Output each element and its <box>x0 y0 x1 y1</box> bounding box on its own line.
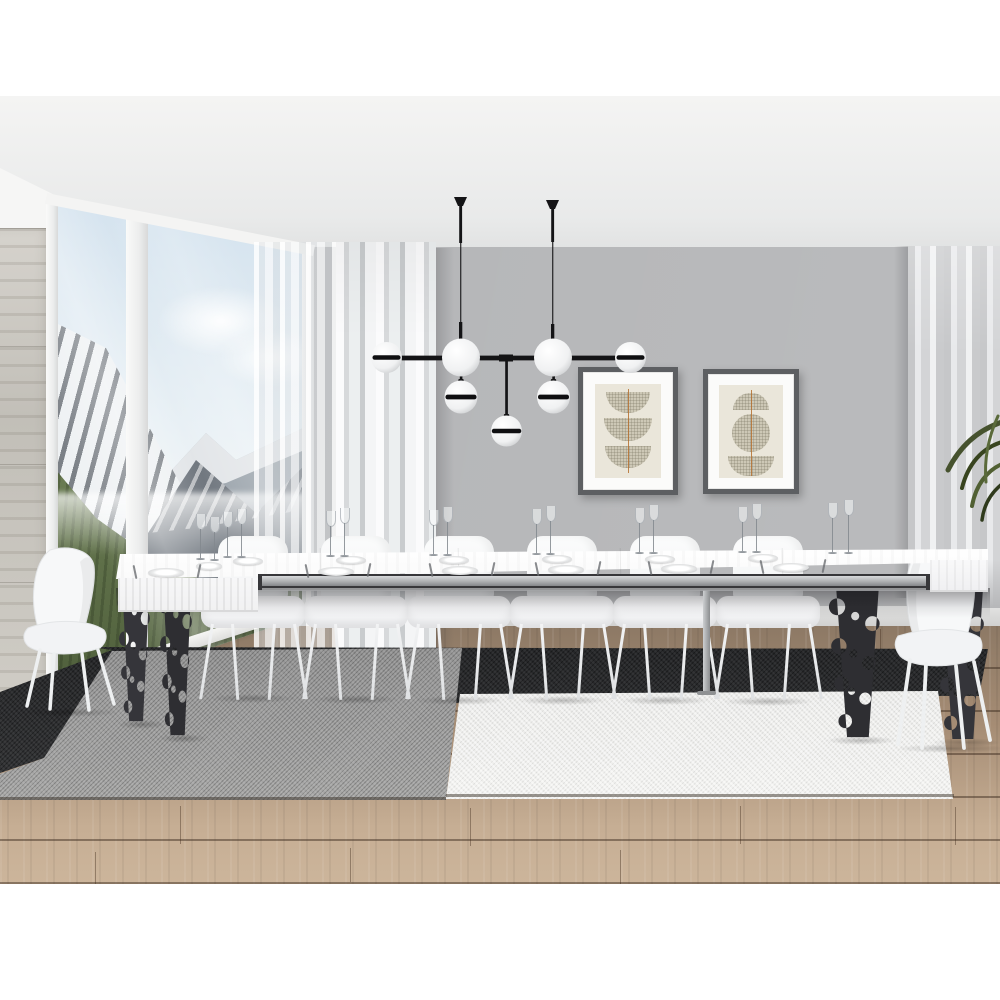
plate <box>439 556 469 564</box>
wine-glass <box>429 510 439 556</box>
plate <box>748 554 778 562</box>
table-extension-rail-lower <box>262 588 926 591</box>
wine-glass <box>752 504 762 553</box>
plate <box>318 567 354 576</box>
rug-fringe <box>446 794 954 797</box>
plate <box>442 566 478 575</box>
head-chair-left <box>10 546 128 714</box>
plate <box>661 564 697 573</box>
plate <box>148 568 184 577</box>
wine-glass <box>635 508 645 554</box>
leg-shadow <box>118 720 166 729</box>
wine-glass <box>237 509 247 558</box>
table-center-support <box>703 588 710 692</box>
wine-glass <box>828 503 838 554</box>
photo-canvas <box>0 0 1000 1000</box>
table-end-right <box>930 560 988 592</box>
table-center-support-foot <box>697 691 716 695</box>
wine-glass <box>532 509 542 555</box>
plate <box>336 556 366 564</box>
rug-fringe <box>0 797 446 800</box>
wine-glass <box>210 517 220 561</box>
wine-glass <box>223 512 233 558</box>
wine-glass <box>326 511 336 557</box>
wine-glass <box>738 507 748 553</box>
wine-glass <box>844 500 854 554</box>
table-extension-rail <box>262 576 926 586</box>
plate <box>233 557 263 565</box>
wine-glass <box>649 505 659 554</box>
wine-glass <box>340 508 350 557</box>
chandelier-globe <box>534 339 572 377</box>
plant-fronds <box>918 412 1000 530</box>
wine-glass <box>196 514 206 560</box>
table-end-left <box>118 578 258 612</box>
plate <box>773 563 809 572</box>
leg-shadow <box>158 734 208 743</box>
chandelier-frame <box>384 197 632 417</box>
plate <box>542 555 572 563</box>
wine-glass <box>443 507 453 556</box>
dining-room-photo <box>0 96 1000 884</box>
wine-glass <box>546 506 556 555</box>
chandelier-globe <box>442 339 480 377</box>
plate <box>548 565 584 574</box>
